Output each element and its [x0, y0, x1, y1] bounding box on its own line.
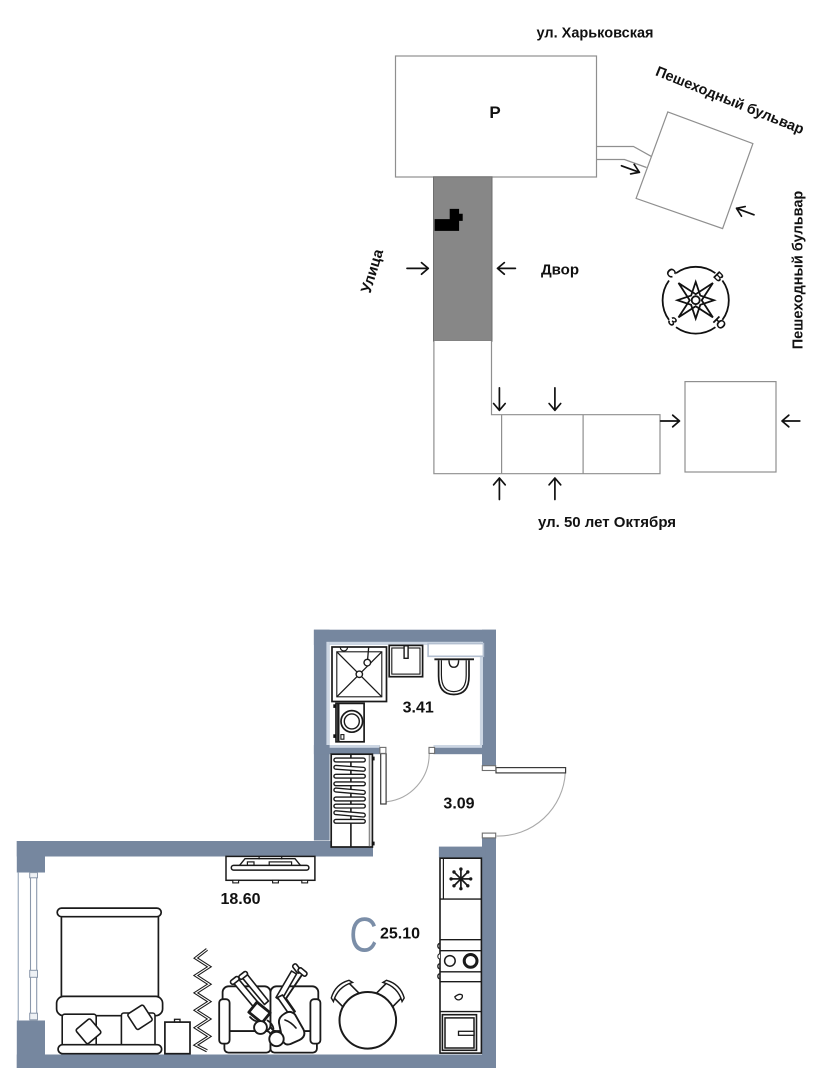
svg-text:3.09: 3.09: [443, 795, 474, 812]
svg-text:18.60: 18.60: [220, 891, 260, 908]
svg-text:ул. Харьковская: ул. Харьковская: [537, 26, 654, 42]
svg-text:С: С: [663, 265, 679, 281]
svg-text:Двор: Двор: [541, 262, 579, 279]
svg-text:С: С: [349, 908, 377, 962]
svg-text:Пешеходный бульвар: Пешеходный бульвар: [791, 191, 807, 350]
svg-text:Улица: Улица: [358, 247, 388, 296]
svg-text:3.41: 3.41: [403, 700, 434, 717]
svg-text:Р: Р: [489, 103, 500, 122]
svg-text:ул. 50 лет Октября: ул. 50 лет Октября: [538, 514, 676, 531]
svg-text:25.10: 25.10: [380, 926, 420, 943]
